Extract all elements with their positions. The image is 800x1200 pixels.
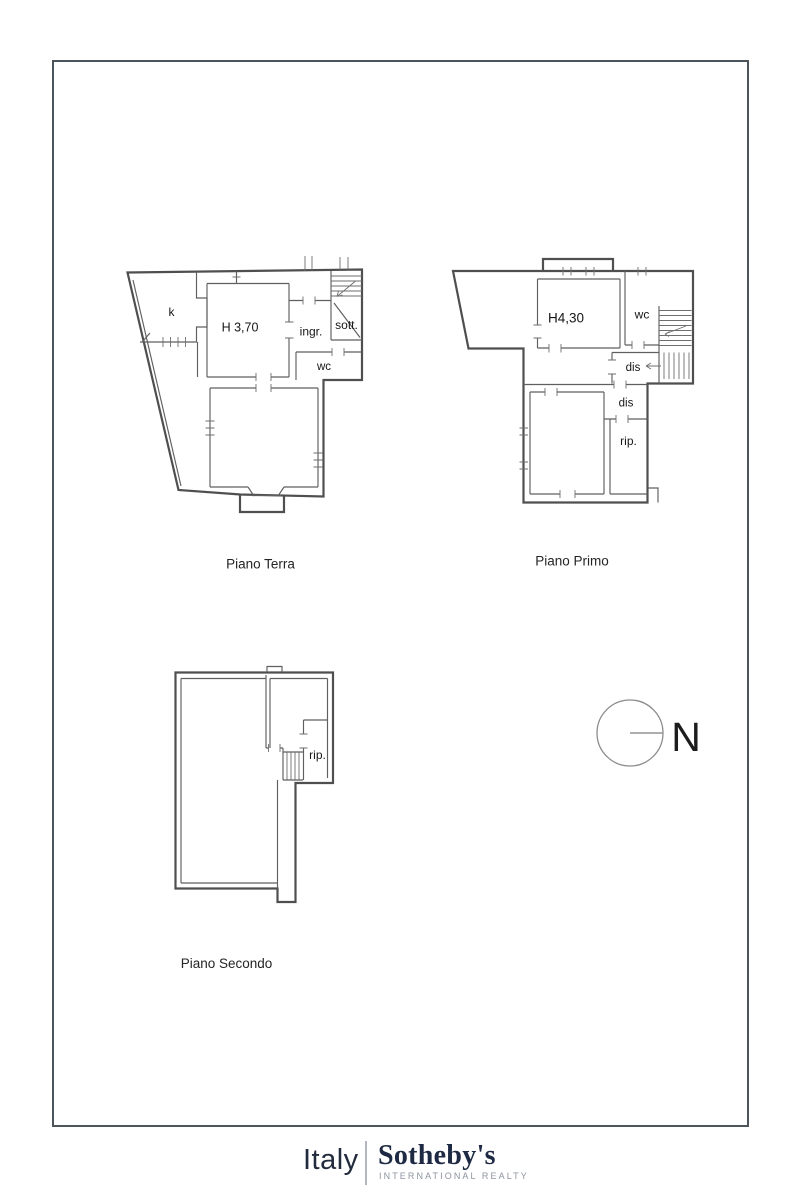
stairs-enclosure — [283, 748, 303, 780]
room-label-ingresso: ingr. — [300, 325, 323, 339]
bottom-room-walls — [210, 388, 318, 496]
stairs-treads — [659, 311, 692, 380]
brand-region-text: Italy — [303, 1146, 359, 1175]
room-label-height: H 3,70 — [222, 321, 259, 335]
chimney-ticks — [305, 256, 348, 271]
room-label-kitchen: k — [169, 305, 176, 319]
wc-door-ticks — [632, 341, 644, 349]
step-notch — [648, 488, 659, 503]
room-label-height: H4,30 — [548, 311, 584, 326]
entry-step — [240, 495, 284, 512]
ripostiglio-walls — [610, 419, 648, 494]
section-wall-ticks — [614, 381, 626, 389]
plan-piano-terra: k H 3,70 ingr. sott. wc Piano Terra — [128, 256, 363, 572]
lower-room-ticks — [520, 388, 576, 498]
big-room-inner-walls — [181, 679, 278, 884]
room-label-dis-upper: dis — [626, 362, 641, 374]
kitchen-walls — [140, 272, 207, 378]
brand-tagline-text: INTERNATIONAL REALTY — [379, 1172, 529, 1181]
room-label-wc: wc — [634, 308, 650, 322]
room-label-dis-lower: dis — [619, 398, 634, 410]
stairs-treads — [331, 276, 362, 297]
plan-piano-primo: H4,30 wc dis dis rip. Piano Primo — [453, 259, 693, 569]
compass-icon: N — [597, 700, 701, 766]
floor-caption-piano-primo: Piano Primo — [535, 554, 609, 569]
north-label: N — [671, 714, 701, 760]
room-label-wc: wc — [316, 361, 331, 373]
brand-name-text: Sotheby's — [378, 1142, 496, 1170]
dis-lower-ticks — [616, 415, 628, 423]
room-label-sottoscala: sott. — [335, 318, 358, 332]
ripostiglio-door-ticks — [300, 734, 308, 748]
outer-wall — [453, 271, 693, 503]
lower-room-walls — [530, 392, 604, 494]
room-label-ripostiglio: rip. — [620, 434, 637, 448]
bottom-room-ticks — [206, 384, 323, 467]
chimney-box — [543, 259, 613, 271]
floor-plan-drawing: k H 3,70 ingr. sott. wc Piano Terra H4,3… — [0, 0, 800, 1200]
floor-caption-piano-secondo: Piano Secondo — [181, 956, 273, 971]
ingresso-door-ticks — [303, 297, 315, 305]
outer-wall — [128, 270, 363, 497]
wc-door-ticks — [332, 348, 344, 356]
partition-wall — [266, 675, 270, 748]
brand-divider-line — [365, 1141, 367, 1185]
outer-wall — [176, 673, 334, 903]
roof-bump — [267, 667, 282, 673]
stairs-treads — [287, 752, 299, 780]
floor-caption-piano-terra: Piano Terra — [226, 557, 295, 572]
footer-logo: Italy Sotheby's INTERNATIONAL REALTY — [0, 1134, 800, 1194]
plan-piano-secondo: rip. Piano Secondo — [176, 667, 334, 972]
room-label-ripostiglio: rip. — [309, 748, 326, 762]
